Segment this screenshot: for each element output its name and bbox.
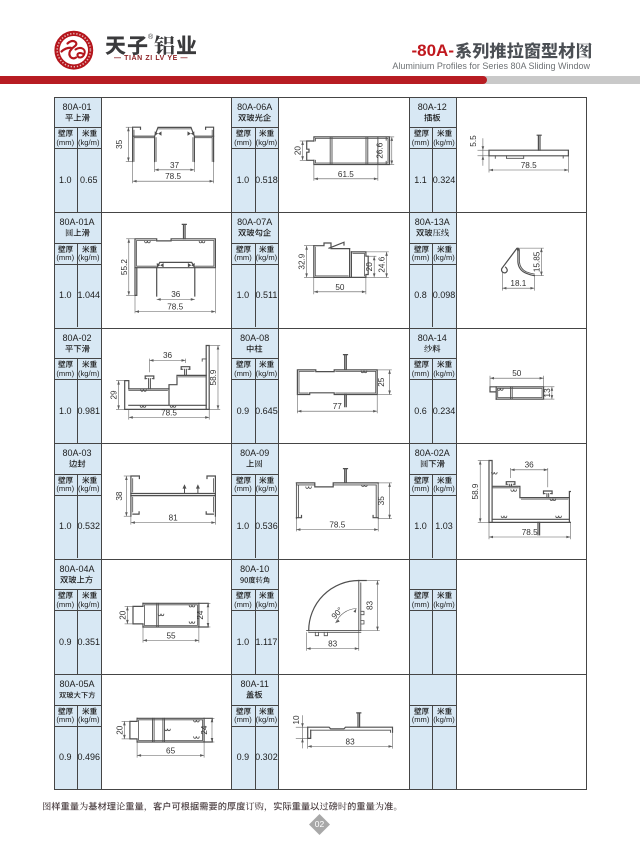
svg-text:36: 36 [171, 290, 181, 299]
svg-text:55.2: 55.2 [119, 259, 128, 275]
svg-text:15.85: 15.85 [532, 251, 541, 272]
svg-text:83: 83 [346, 737, 356, 746]
svg-text:78.5: 78.5 [167, 303, 183, 312]
svg-text:20: 20 [294, 145, 303, 155]
svg-text:78.5: 78.5 [165, 172, 181, 181]
svg-text:24: 24 [195, 610, 204, 620]
svg-text:90°: 90° [330, 605, 345, 620]
svg-text:78.5: 78.5 [521, 160, 537, 169]
svg-text:20: 20 [115, 725, 124, 735]
svg-text:26.6: 26.6 [376, 142, 385, 158]
svg-text:35: 35 [377, 496, 386, 506]
svg-text:50: 50 [512, 369, 522, 378]
svg-text:58.9: 58.9 [208, 369, 217, 385]
svg-text:13: 13 [543, 387, 552, 397]
svg-text:25: 25 [377, 377, 386, 387]
svg-text:24.6: 24.6 [378, 256, 387, 272]
svg-text:65: 65 [166, 746, 176, 755]
svg-text:50: 50 [336, 283, 346, 292]
svg-text:36: 36 [162, 351, 172, 360]
svg-text:37: 37 [169, 160, 179, 169]
svg-text:29: 29 [109, 390, 118, 400]
svg-text:18.1: 18.1 [510, 279, 526, 288]
svg-text:10: 10 [292, 715, 301, 725]
svg-text:77: 77 [333, 402, 343, 411]
svg-text:78.5: 78.5 [522, 528, 538, 537]
svg-text:78.5: 78.5 [161, 408, 177, 417]
svg-text:81: 81 [168, 513, 178, 522]
svg-text:83: 83 [366, 600, 375, 610]
svg-text:38: 38 [114, 491, 123, 501]
svg-text:55: 55 [166, 631, 176, 640]
svg-text:20: 20 [118, 610, 127, 620]
svg-text:83: 83 [328, 639, 338, 648]
svg-text:61.5: 61.5 [338, 169, 354, 178]
svg-text:5.5: 5.5 [469, 134, 478, 146]
svg-text:36: 36 [524, 460, 534, 469]
svg-text:32.9: 32.9 [298, 253, 307, 269]
svg-text:24: 24 [199, 725, 208, 735]
svg-text:58.9: 58.9 [471, 483, 480, 499]
svg-text:78.5: 78.5 [330, 521, 346, 530]
svg-text:35: 35 [114, 139, 123, 149]
svg-text:20: 20 [365, 262, 374, 272]
